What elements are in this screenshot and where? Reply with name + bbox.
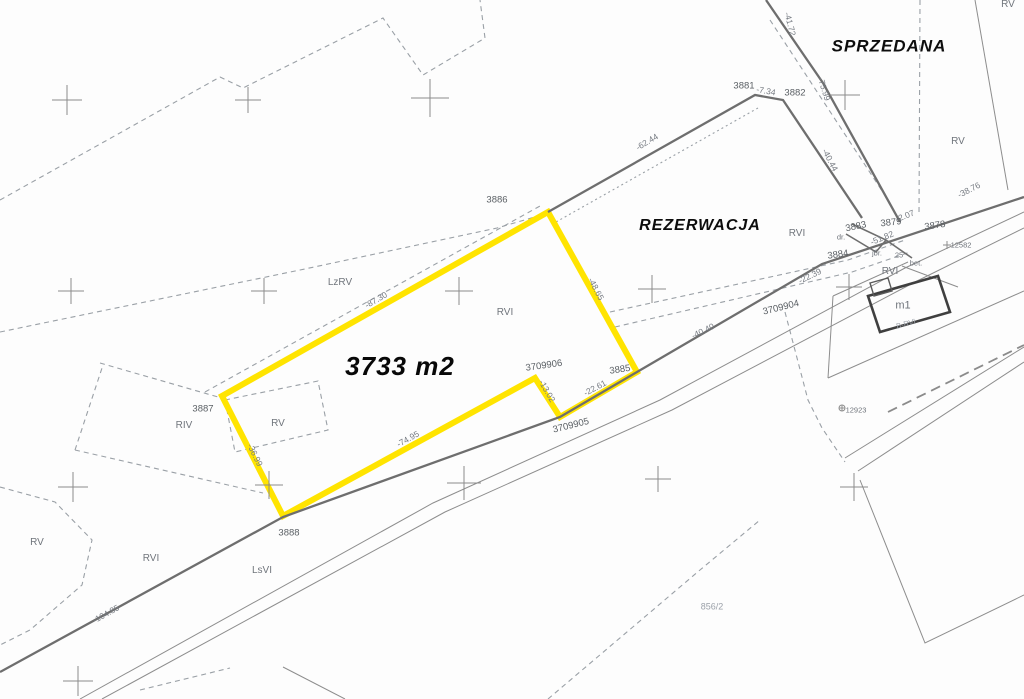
house-number-25: 25: [895, 251, 903, 259]
note-bet: bet.: [910, 259, 923, 267]
label-layer: SPRZEDANAREZERWACJA3733 m238863881388238…: [0, 0, 1024, 699]
soil-rvi-mid: RVI: [789, 229, 806, 239]
cadastral-map: SPRZEDANAREZERWACJA3733 m238863881388238…: [0, 0, 1024, 699]
soil-lsvi: LsVI: [252, 566, 272, 576]
parcel-3887: 3887: [192, 404, 213, 414]
dim-41-72: -41.72: [783, 11, 797, 36]
status-sprzedana: SPRZEDANA: [832, 38, 947, 55]
soil-rv-left: RV: [30, 538, 44, 548]
dim-13-02: -13.02: [537, 378, 556, 403]
point-12582: 12582: [951, 241, 972, 249]
dim-7-34: -7.34: [756, 85, 777, 97]
soil-riv: RIV: [176, 421, 193, 431]
soil-rvi-left: RVI: [143, 554, 160, 564]
dim-51-82: -51.82: [869, 230, 895, 247]
parcel-3886: 3886: [486, 195, 507, 205]
parcel-3884: 3884: [827, 249, 849, 261]
building-m1: m1: [895, 301, 910, 312]
dim-2-07: -2.07: [894, 208, 915, 223]
point-12923: 12923: [846, 406, 867, 414]
soil-rvi-junction: RVI: [882, 267, 899, 277]
dim-75-99: -75.99: [816, 76, 831, 102]
parcel-3885: 3885: [609, 364, 631, 376]
status-rezerwacja: REZERWACJA: [639, 218, 761, 234]
parcel-3883: 3883: [845, 220, 868, 234]
plot-area: 3733 m2: [345, 353, 455, 379]
soil-rvi-plot: RVI: [497, 308, 514, 318]
parcel-3709904: 3709904: [762, 299, 800, 317]
dim-62-44: -62.44: [634, 132, 659, 152]
dim-104-85: -104.85: [91, 603, 120, 624]
dim-36-99: -36.99: [246, 442, 264, 467]
dim-40-40: -40.40: [690, 322, 715, 340]
note-dr: dr.: [837, 233, 845, 241]
dim-22-39: -22.39: [797, 267, 822, 285]
parcel-3878: 3878: [924, 220, 946, 232]
dim-38-76: -38.76: [956, 181, 981, 200]
dim-40-44: -40.44: [821, 147, 840, 172]
dim-22-61: -22.61: [582, 379, 607, 398]
dim-74-95: -74.95: [395, 429, 420, 448]
dim-87-30: -87.30: [363, 290, 388, 309]
note-b-rvi: B-RVI: [895, 318, 916, 330]
soil-rv-plot: RV: [271, 419, 285, 429]
parcel-3709906: 3709906: [525, 359, 563, 374]
soil-rv-topright: RV: [951, 137, 965, 147]
parcel-3881: 3881: [733, 81, 754, 91]
soil-lzrv: LzRV: [328, 278, 352, 288]
parcel-3709905: 3709905: [552, 417, 590, 435]
soil-rv-corner: RV: [1001, 0, 1015, 10]
parcel-856-2: 856/2: [701, 603, 724, 612]
parcel-3888: 3888: [278, 528, 299, 538]
dim-48-65: -48.65: [587, 276, 606, 301]
note-jbr: jbr.: [872, 249, 882, 257]
parcel-3882: 3882: [784, 88, 805, 98]
